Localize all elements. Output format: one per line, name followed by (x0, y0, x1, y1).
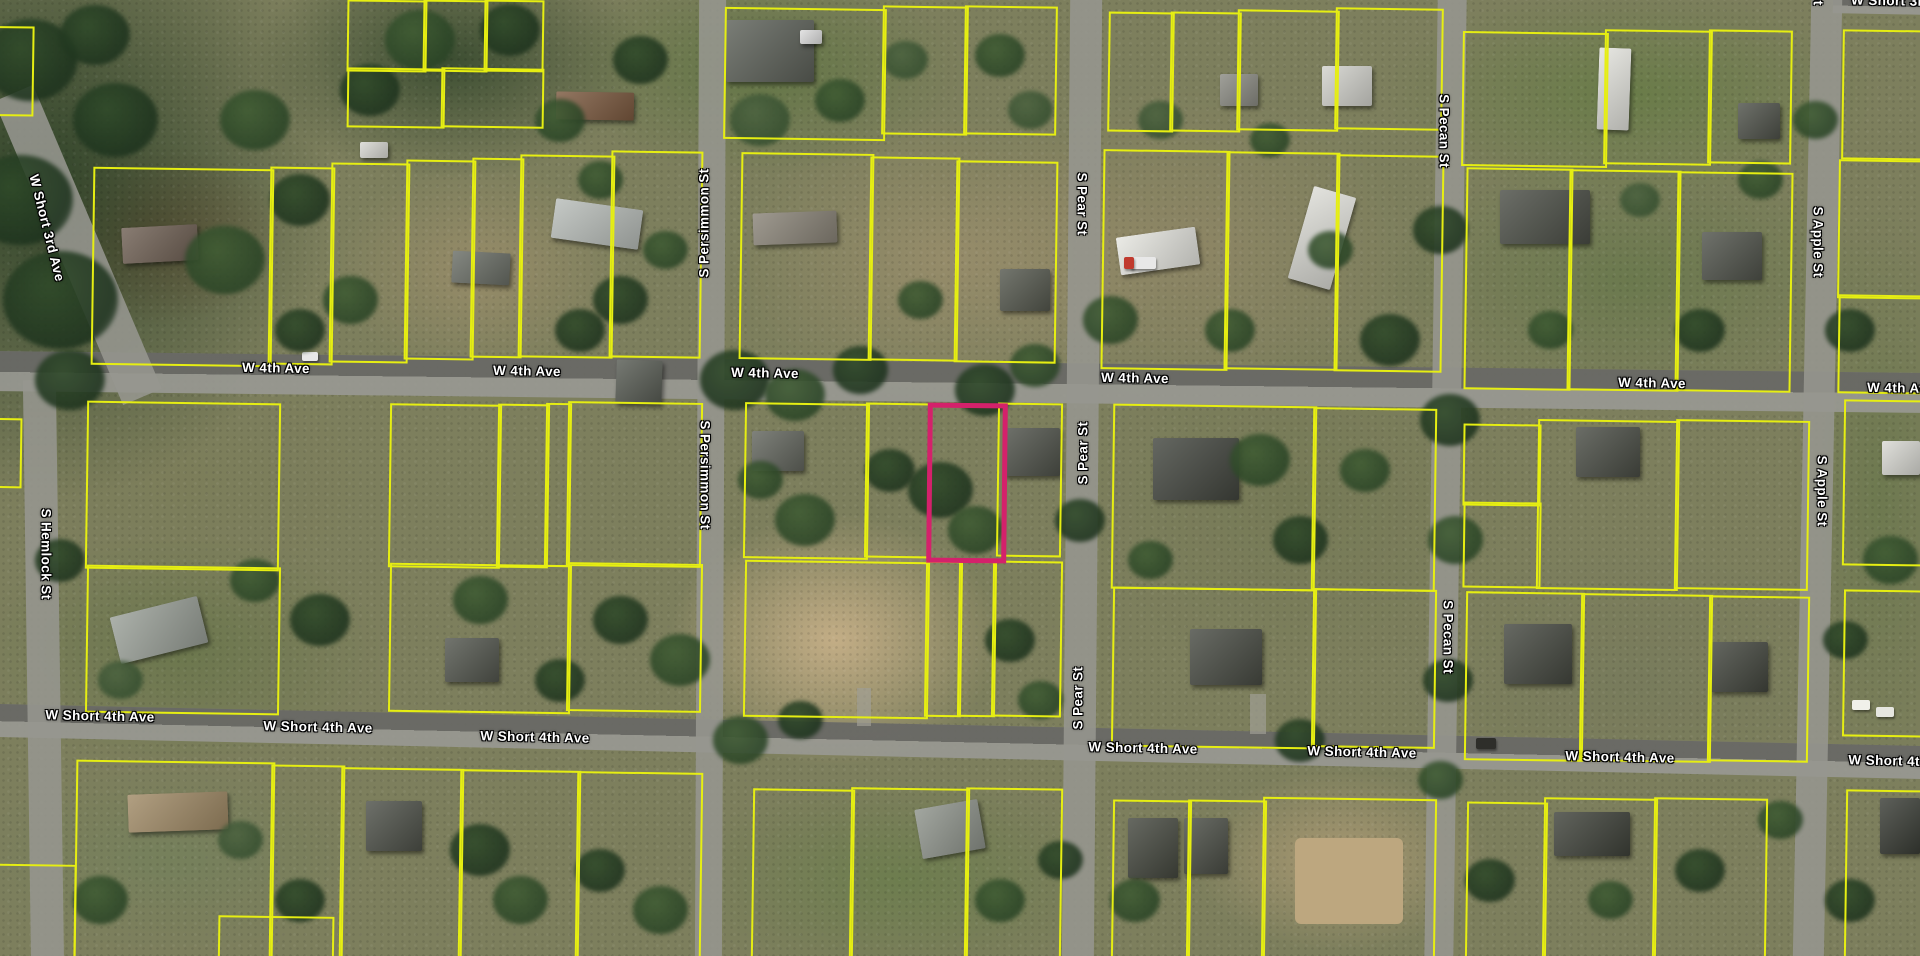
parcel-boundary[interactable] (1223, 151, 1340, 371)
parcel-boundary[interactable] (739, 152, 875, 361)
parcel-map-canvas[interactable]: W 4th AveW 4th AveW 4th AveW 4th AveW 4t… (0, 0, 1920, 956)
selected-parcel-highlight[interactable] (926, 403, 1008, 564)
parcel-boundary[interactable] (1311, 588, 1437, 749)
parcel-boundary[interactable] (470, 158, 525, 359)
parcel-boundary[interactable] (1111, 587, 1317, 750)
parcel-boundary[interactable] (864, 403, 932, 559)
parcel-boundary[interactable] (388, 403, 502, 569)
parcel-boundary[interactable] (1841, 29, 1920, 160)
parcel-boundary[interactable] (991, 561, 1063, 718)
parcel-boundary[interactable] (1186, 799, 1267, 956)
parcel-boundary[interactable] (1311, 407, 1438, 592)
parcel-boundary[interactable] (1461, 31, 1609, 168)
parcel-boundary[interactable] (1334, 7, 1444, 130)
parcel-boundary[interactable] (91, 167, 275, 368)
parcel-boundary[interactable] (1333, 154, 1444, 372)
parcel-boundary[interactable] (404, 160, 477, 361)
parcel-boundary[interactable] (1674, 419, 1810, 591)
parcel-boundary[interactable] (423, 0, 489, 72)
parcel-boundary[interactable] (1107, 12, 1175, 133)
parcel-boundary[interactable] (1603, 29, 1713, 165)
parcel-boundary[interactable] (1100, 149, 1230, 371)
parcel-boundary[interactable] (849, 787, 970, 956)
parcel-boundary[interactable] (0, 863, 77, 956)
parcel-boundary[interactable] (1261, 797, 1437, 956)
parcel-boundary[interactable] (609, 150, 704, 358)
parcel-boundary[interactable] (85, 401, 281, 572)
parcel-boundary[interactable] (1707, 29, 1793, 164)
parcel-boundary[interactable] (566, 562, 703, 713)
parcel-boundary[interactable] (1837, 159, 1920, 299)
parcel-boundary[interactable] (1674, 171, 1793, 393)
parcel-boundary[interactable] (964, 787, 1063, 956)
parcel-boundary[interactable] (1464, 591, 1585, 762)
parcel-boundary[interactable] (518, 154, 616, 358)
parcel-boundary[interactable] (0, 418, 22, 489)
parcel-boundary[interactable] (1842, 589, 1920, 737)
parcel-boundary[interactable] (1462, 423, 1541, 506)
parcel-boundary[interactable] (954, 160, 1059, 363)
parcel-boundary[interactable] (743, 560, 930, 720)
parcel-boundary[interactable] (1844, 789, 1920, 956)
parcel-boundary[interactable] (575, 771, 704, 956)
parcel-boundary[interactable] (1837, 294, 1920, 394)
road-w-short-3rd-ave (1833, 0, 1920, 15)
parcel-boundary[interactable] (1463, 167, 1573, 390)
parcel-boundary[interactable] (218, 915, 335, 956)
parcel-boundary[interactable] (1236, 9, 1340, 131)
building-rooftop (556, 91, 634, 120)
parcel-boundary[interactable] (868, 156, 961, 361)
parcel-boundary[interactable] (347, 67, 446, 128)
parcel-boundary[interactable] (723, 7, 887, 141)
parcel-boundary[interactable] (743, 402, 870, 560)
parcel-boundary[interactable] (347, 0, 428, 73)
parcel-boundary[interactable] (458, 769, 582, 956)
parcel-boundary[interactable] (1111, 404, 1318, 592)
parcel-boundary[interactable] (268, 167, 336, 366)
parcel-boundary[interactable] (484, 0, 545, 72)
parcel-boundary[interactable] (1652, 797, 1768, 956)
parcel-boundary[interactable] (1707, 595, 1810, 762)
parcel-boundary[interactable] (1462, 501, 1541, 588)
parcel-boundary[interactable] (1465, 801, 1548, 956)
parcel-boundary[interactable] (881, 5, 969, 135)
parcel-boundary[interactable] (85, 565, 281, 716)
parcel-boundary[interactable] (441, 67, 545, 128)
parcel-boundary[interactable] (566, 401, 703, 568)
parcel-boundary[interactable] (388, 563, 572, 715)
parcel-boundary[interactable] (1842, 399, 1920, 566)
parcel-boundary[interactable] (1536, 419, 1680, 591)
parcel-boundary[interactable] (1579, 593, 1713, 763)
parcel-boundary[interactable] (1542, 797, 1658, 956)
parcel-boundary[interactable] (496, 404, 550, 569)
building-rooftop (615, 359, 663, 405)
parcel-boundary[interactable] (1566, 169, 1681, 392)
parcel-boundary[interactable] (0, 25, 35, 116)
parcel-boundary[interactable] (339, 767, 465, 956)
parcel-boundary[interactable] (329, 162, 411, 363)
parcel-boundary[interactable] (1169, 12, 1242, 133)
building-rooftop (360, 142, 388, 158)
parcel-boundary[interactable] (1111, 799, 1192, 956)
parcel-boundary[interactable] (963, 5, 1058, 135)
parcel-boundary[interactable] (751, 788, 855, 956)
